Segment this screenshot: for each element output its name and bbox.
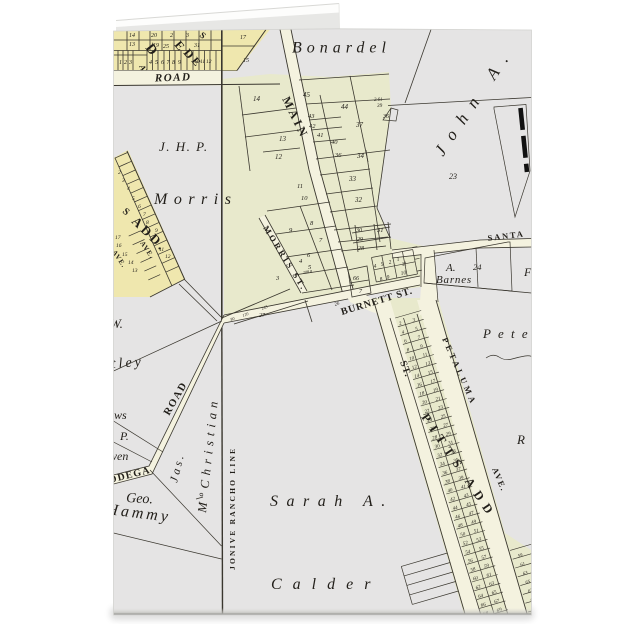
svg-text:1: 1: [119, 60, 122, 66]
svg-text:43: 43: [308, 113, 315, 120]
svg-text:27: 27: [259, 313, 266, 319]
svg-text:32: 32: [354, 196, 363, 204]
svg-text:Calder: Calder: [271, 576, 381, 593]
svg-text:13: 13: [129, 42, 135, 48]
svg-text:ws: ws: [114, 408, 127, 422]
svg-text:Sarah A.: Sarah A.: [270, 493, 394, 510]
svg-text:31: 31: [193, 43, 200, 49]
svg-text:41: 41: [317, 132, 324, 139]
svg-text:J. H. P.: J. H. P.: [159, 139, 209, 154]
svg-text:10: 10: [194, 59, 200, 65]
svg-text:12: 12: [165, 254, 171, 260]
svg-text:Bonardel: Bonardel: [292, 40, 391, 57]
svg-text:33: 33: [348, 175, 357, 183]
svg-text:4: 4: [149, 59, 152, 66]
svg-text:44: 44: [341, 103, 349, 111]
svg-text:9: 9: [178, 60, 181, 66]
svg-text:36: 36: [334, 152, 342, 159]
svg-text:23: 23: [449, 172, 457, 181]
svg-text:3: 3: [185, 33, 189, 39]
svg-text:40: 40: [331, 139, 338, 146]
svg-text:5: 5: [155, 60, 158, 66]
svg-text:6: 6: [138, 204, 141, 210]
svg-text:11: 11: [200, 59, 205, 65]
svg-text:29: 29: [357, 237, 363, 243]
svg-text:12: 12: [206, 59, 212, 65]
svg-text:P.: P.: [119, 429, 129, 443]
svg-text:39: 39: [377, 103, 383, 109]
svg-text:45: 45: [303, 91, 311, 99]
svg-text:24: 24: [473, 262, 482, 272]
svg-text:34: 34: [356, 152, 365, 160]
svg-text:14: 14: [128, 259, 134, 266]
svg-text:F: F: [523, 265, 532, 279]
svg-text:14: 14: [129, 32, 135, 39]
svg-text:15: 15: [243, 58, 249, 64]
svg-text:25: 25: [163, 44, 169, 50]
svg-text:36: 36: [382, 114, 389, 120]
svg-text:42: 42: [309, 123, 316, 130]
svg-text:28: 28: [358, 246, 364, 252]
svg-text:A.: A.: [445, 262, 455, 274]
svg-text:17: 17: [115, 235, 121, 241]
svg-text:JONIVE RANCHO LINE: JONIVE RANCHO LINE: [228, 447, 237, 570]
svg-text:66: 66: [353, 276, 359, 282]
svg-text:Morris: Morris: [153, 191, 237, 208]
svg-text:12: 12: [275, 153, 283, 161]
svg-text:2: 2: [124, 60, 127, 66]
svg-text:10: 10: [301, 195, 308, 202]
svg-text:3: 3: [121, 178, 125, 184]
svg-text:4: 4: [127, 185, 130, 192]
svg-text:14: 14: [253, 95, 261, 103]
svg-text:30: 30: [355, 228, 362, 234]
svg-text:20: 20: [151, 33, 157, 39]
svg-text:2: 2: [118, 170, 121, 176]
svg-text:6: 6: [161, 60, 164, 66]
svg-text:13: 13: [132, 268, 138, 274]
svg-text:13: 13: [279, 135, 287, 143]
svg-text:37: 37: [355, 121, 364, 129]
svg-text:5: 5: [132, 196, 135, 202]
svg-text:17: 17: [240, 35, 247, 41]
svg-text:8: 8: [172, 60, 175, 66]
svg-text:Barnes: Barnes: [436, 274, 472, 286]
svg-text:2: 2: [170, 33, 173, 39]
svg-text:11: 11: [297, 183, 303, 190]
svg-text:R: R: [516, 432, 525, 447]
svg-text:ROAD: ROAD: [154, 71, 192, 84]
svg-text:3: 3: [128, 60, 132, 66]
svg-text:19: 19: [153, 43, 159, 49]
svg-text:31: 31: [376, 227, 384, 234]
svg-text:P e t e: P e t e: [482, 326, 530, 341]
